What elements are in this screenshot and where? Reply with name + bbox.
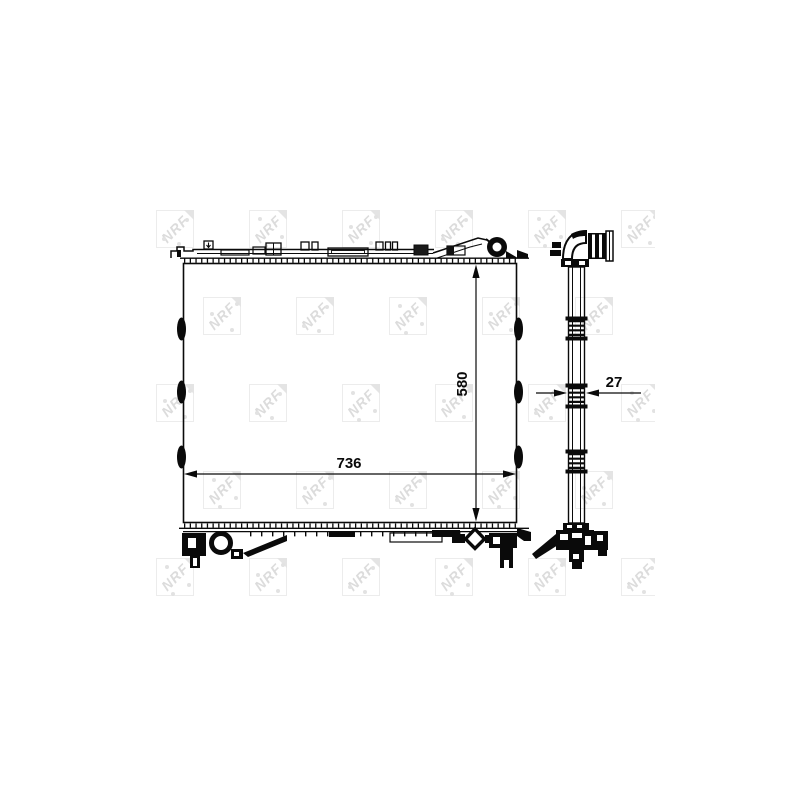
width-dimension: 736 — [184, 455, 516, 478]
left-edge-bumps — [177, 318, 186, 469]
side-core-column — [569, 267, 585, 523]
left-mounting-foot — [182, 533, 287, 568]
width-dimension-label: 736 — [336, 455, 361, 472]
depth-dimension-label: 27 — [606, 374, 623, 391]
side-bottom-bracket — [532, 523, 608, 569]
top-header-band — [180, 258, 529, 260]
right-mounting-foot — [489, 528, 531, 568]
side-view: 27 — [532, 231, 641, 569]
side-inlet-fitting — [550, 231, 613, 267]
height-dimension: 580 — [454, 265, 480, 522]
front-view: 736 580 — [171, 237, 531, 568]
bottom-header-band — [179, 526, 529, 529]
height-dimension-label: 580 — [454, 371, 471, 396]
hose-connector — [588, 231, 613, 261]
radiator-drawing-canvas: NRFNRFNRFNRFNRFNRFNRFNRFNRFNRFNRFNRFNRFN… — [0, 0, 800, 800]
top-tank — [171, 237, 528, 258]
filler-cap — [486, 237, 517, 258]
technical-drawing: 736 580 — [0, 0, 800, 800]
right-edge-bumps — [514, 318, 523, 469]
depth-dimension: 27 — [536, 374, 641, 397]
bottom-tank — [182, 528, 531, 568]
